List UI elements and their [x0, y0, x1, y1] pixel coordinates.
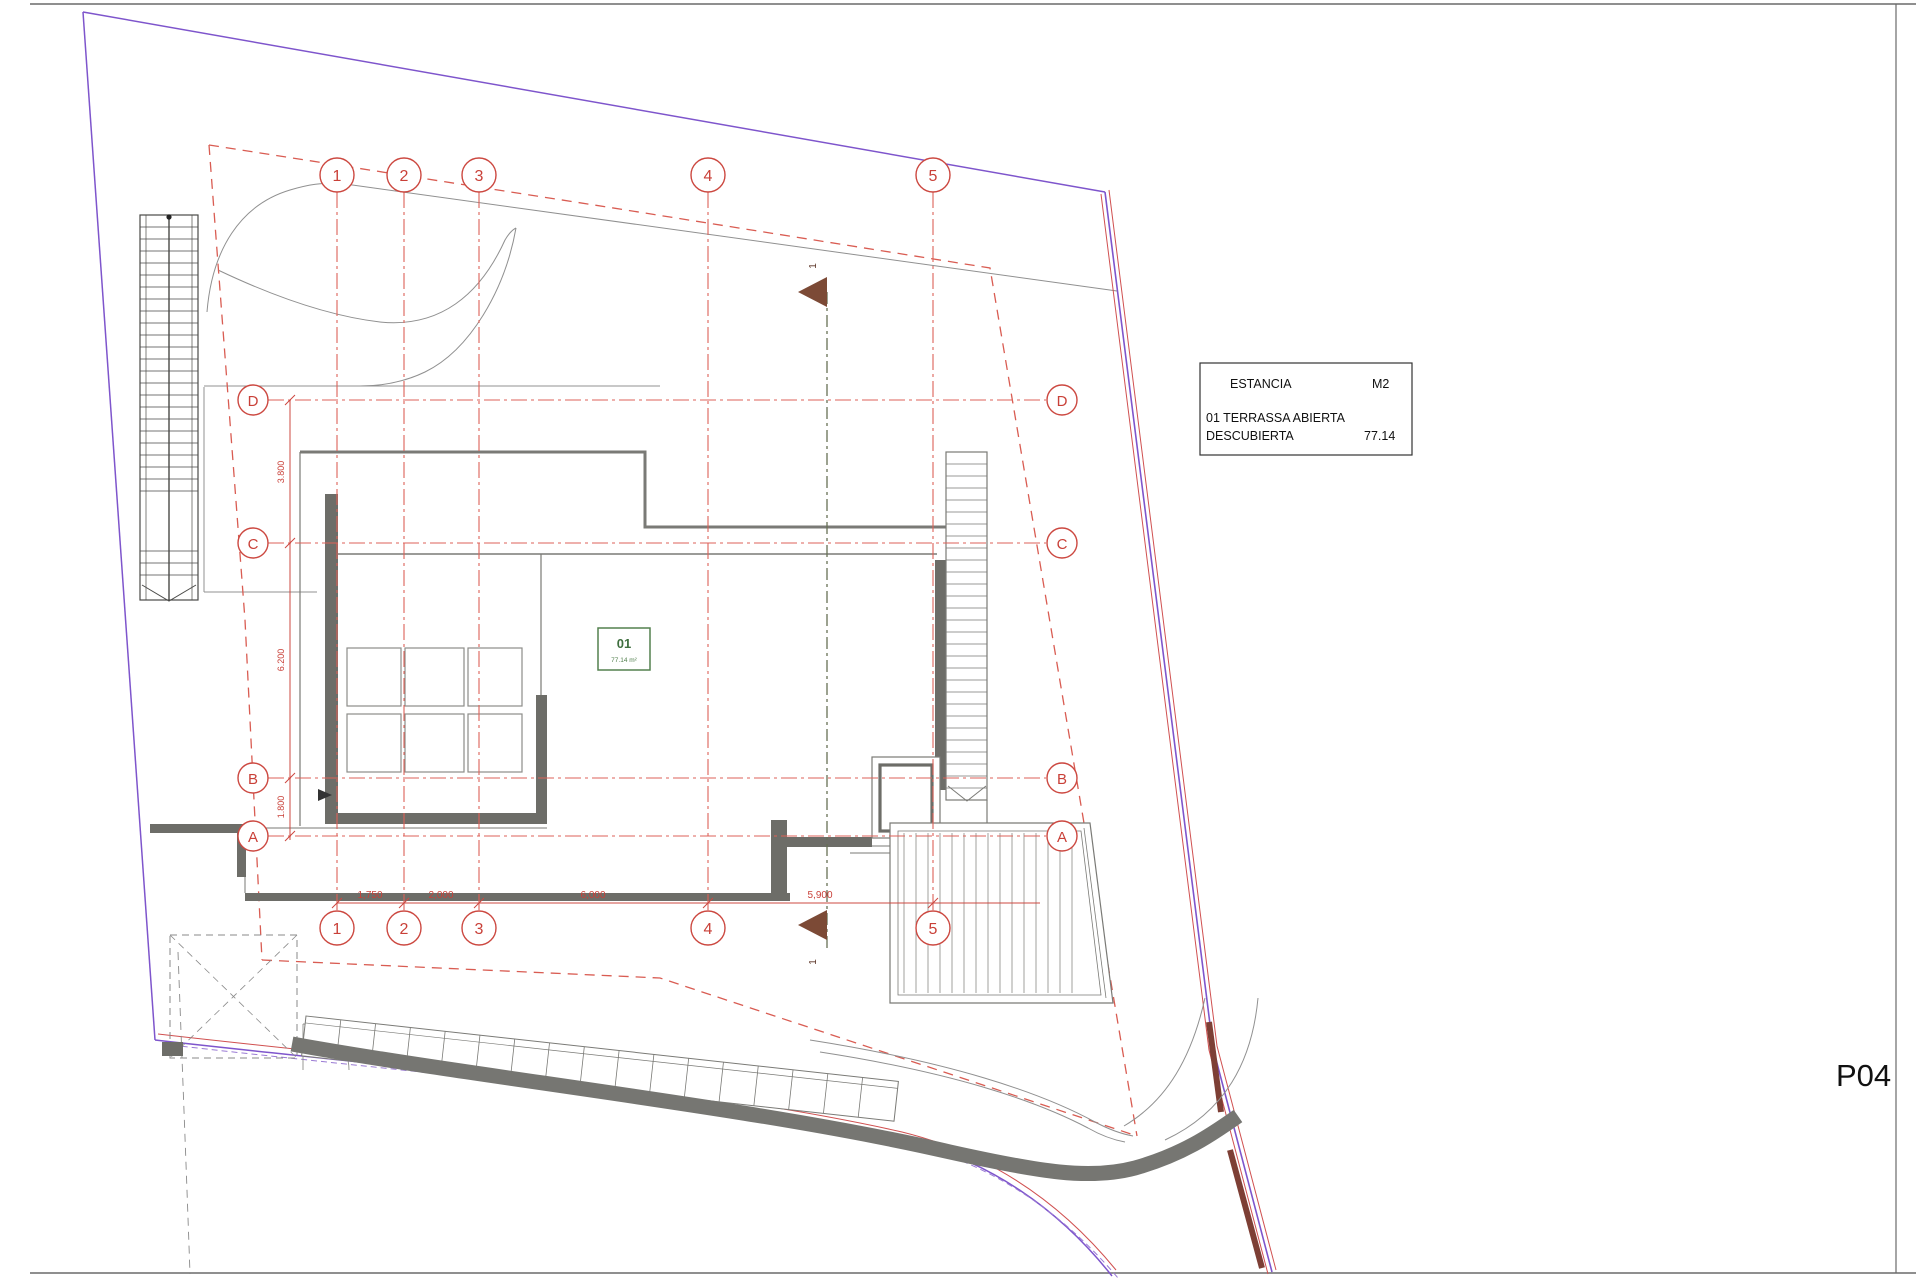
grid-col-2-bottom: 2 — [400, 921, 409, 938]
room-tag-area: 77.14 m² — [611, 657, 637, 664]
grid-col-3-bottom: 3 — [475, 921, 484, 938]
section-arrow-top — [798, 277, 827, 307]
dim-vertical-1: 3.800 — [276, 461, 286, 484]
left-exterior-stair — [140, 214, 198, 601]
section-arrow-bottom — [798, 910, 827, 940]
grid-col-5-bottom: 5 — [929, 921, 938, 938]
boundary-wall-stub — [162, 1042, 183, 1056]
dim-horizontal-1: 1,750 — [357, 890, 382, 901]
section-label-top: 1 — [808, 263, 819, 269]
dim-vertical-3: 1.800 — [276, 796, 286, 819]
grid-col-2-top: 2 — [400, 168, 409, 185]
skylight-panels — [347, 648, 522, 772]
sheet-code: P04 — [1836, 1058, 1891, 1093]
grid-row-a-right: A — [1057, 829, 1067, 846]
site-plan-drawing: 1 1 3.800 6.200 1.800 1,750 2,000 6,000 … — [0, 0, 1920, 1280]
grid-row-d-right: D — [1057, 393, 1068, 410]
dim-horizontal-3: 6,000 — [580, 890, 605, 901]
building — [150, 452, 987, 901]
dim-horizontal-2: 2,000 — [428, 890, 453, 901]
interior-stair — [946, 452, 987, 801]
deck-stair — [890, 823, 1113, 1003]
legend-box: ESTANCIA M2 01 TERRASSA ABIERTA DESCUBIE… — [1200, 363, 1412, 455]
section-line: 1 1 — [798, 263, 827, 965]
legend-header-m2: M2 — [1372, 377, 1389, 391]
grid-col-5-top: 5 — [929, 168, 938, 185]
grid-row-d-left: D — [248, 393, 259, 410]
legend-row-line2: DESCUBIERTA — [1206, 429, 1294, 443]
room-tag-number: 01 — [617, 636, 631, 651]
legend-row-line1: 01 TERRASSA ABIERTA — [1206, 411, 1346, 425]
dim-vertical-2: 6.200 — [276, 649, 286, 672]
grid-row-a-left: A — [248, 829, 258, 846]
grid-col-1-top: 1 — [333, 168, 342, 185]
section-label-bottom: 1 — [808, 959, 819, 965]
dim-horizontal-4: 5,900 — [807, 890, 832, 901]
grid-row-b-left: B — [248, 771, 258, 788]
plan-sheet: 1 1 3.800 6.200 1.800 1,750 2,000 6,000 … — [0, 0, 1920, 1280]
grid-col-4-bottom: 4 — [704, 921, 713, 938]
grid-col-4-top: 4 — [704, 168, 713, 185]
grid-row-b-right: B — [1057, 771, 1067, 788]
legend-header-estancia: ESTANCIA — [1230, 377, 1292, 391]
grid-row-c-left: C — [248, 536, 259, 553]
legend-row-value: 77.14 — [1364, 429, 1395, 443]
grid-col-3-top: 3 — [475, 168, 484, 185]
grid-col-1-bottom: 1 — [333, 921, 342, 938]
room-tag: 01 77.14 m² — [598, 628, 650, 670]
grid-row-c-right: C — [1057, 536, 1068, 553]
carport-dashed-box — [170, 935, 297, 1274]
